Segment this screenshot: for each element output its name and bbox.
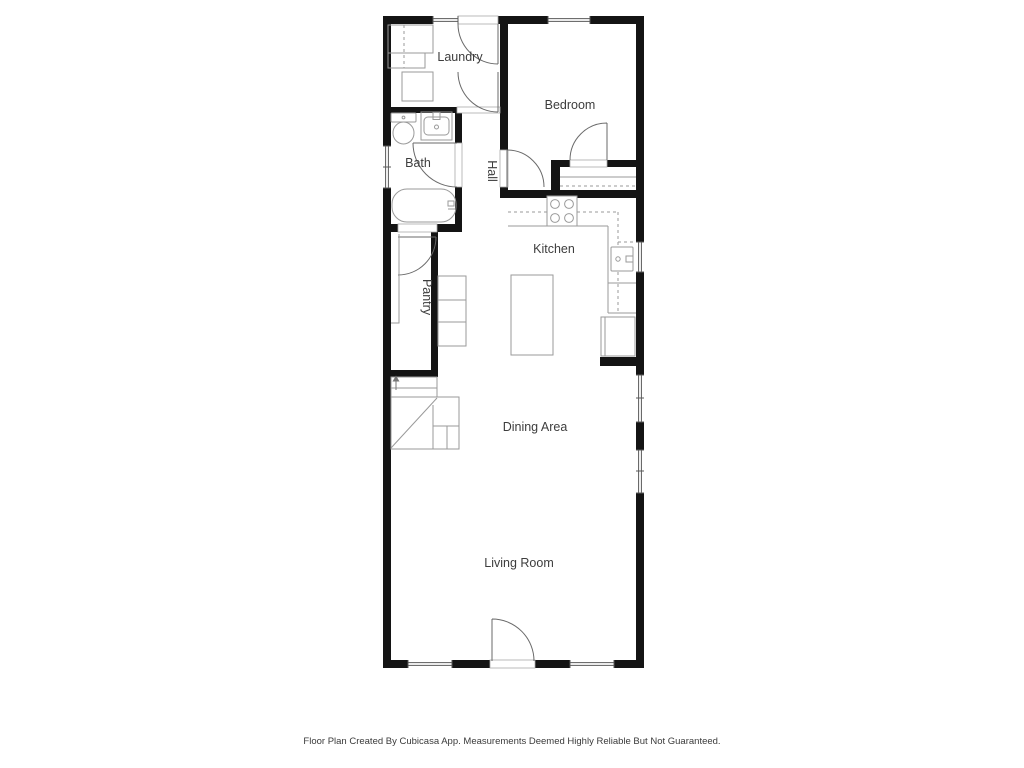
laundry-counter <box>388 25 433 68</box>
bathtub-icon <box>392 189 456 222</box>
room-label-laundry: Laundry <box>437 50 483 64</box>
room-label-hall: Hall <box>485 160 499 182</box>
door-bedroom-closet <box>570 123 607 160</box>
bath-sink-icon <box>421 112 452 140</box>
room-label-bath: Bath <box>405 156 431 170</box>
window-dining-upper <box>636 375 644 422</box>
refrigerator-icon <box>601 317 635 356</box>
room-label-pantry: Pantry <box>420 279 434 316</box>
window-living-right <box>570 660 614 668</box>
room-label-bedroom: Bedroom <box>545 98 596 112</box>
cabinet-stack <box>438 276 466 346</box>
door-laundry-hall <box>458 72 498 112</box>
staircase <box>391 377 459 449</box>
footer-disclaimer: Floor Plan Created By Cubicasa App. Meas… <box>0 736 1024 747</box>
room-label-living-room: Living Room <box>484 556 553 570</box>
floor-plan-drawing: Laundry Bedroom Bath Hall Kitchen Pantry… <box>0 0 1024 768</box>
window-kitchen <box>636 242 644 272</box>
door-pantry <box>398 237 436 275</box>
stove-icon <box>547 196 577 226</box>
toilet-icon <box>391 113 416 144</box>
room-label-dining-area: Dining Area <box>503 420 568 434</box>
pantry-shelf <box>391 234 399 323</box>
kitchen-island <box>511 275 553 355</box>
door-front-entry <box>492 619 534 661</box>
window-dining-lower <box>636 450 644 493</box>
window-laundry <box>433 16 458 24</box>
closet-shelf <box>560 177 636 186</box>
door-bedroom <box>507 150 544 187</box>
washer-icon <box>402 72 433 101</box>
window-living-left <box>408 660 452 668</box>
window-bath <box>383 146 391 188</box>
floor-plan-page: Laundry Bedroom Bath Hall Kitchen Pantry… <box>0 0 1024 768</box>
room-label-kitchen: Kitchen <box>533 242 575 256</box>
kitchen-sink-icon <box>611 247 633 271</box>
window-bedroom <box>548 16 590 24</box>
